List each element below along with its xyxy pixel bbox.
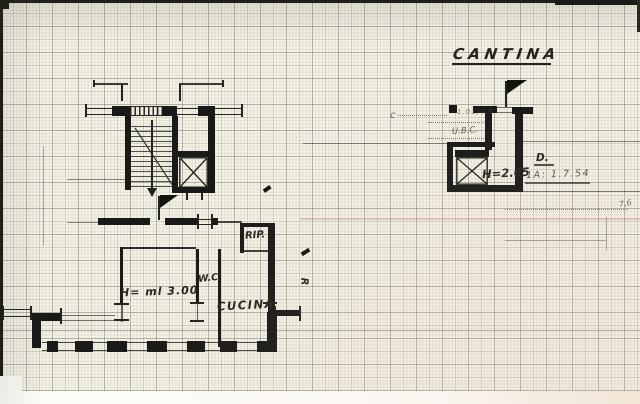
underline bbox=[525, 182, 590, 184]
window-symbol bbox=[3, 309, 31, 317]
cellar-wall bbox=[447, 142, 495, 147]
scan-edge-top bbox=[0, 0, 640, 3]
balcony-outline bbox=[179, 83, 223, 85]
construction-line bbox=[303, 143, 448, 144]
side-mark: R bbox=[298, 277, 309, 285]
plan-title: CANTINA bbox=[452, 45, 561, 63]
arrow-mark-icon bbox=[301, 248, 311, 256]
interior-wall bbox=[240, 223, 244, 253]
window-symbol bbox=[86, 108, 112, 115]
corner-wall bbox=[32, 313, 62, 321]
room-label-wc: W.C bbox=[197, 272, 218, 285]
construction-line bbox=[67, 179, 125, 180]
window-symbol bbox=[275, 310, 301, 316]
pilaster bbox=[257, 341, 277, 352]
construction-line bbox=[505, 240, 606, 241]
stair-window-symbol bbox=[130, 106, 162, 116]
room-label-storage: RIP. bbox=[245, 229, 266, 241]
cellar-height-note: H=2.65 bbox=[482, 165, 530, 181]
section-marker-icon bbox=[507, 80, 527, 94]
door-tick bbox=[114, 319, 129, 321]
tick bbox=[93, 80, 95, 87]
door-tick bbox=[201, 193, 203, 200]
dotted-leader bbox=[428, 122, 490, 123]
exterior-wall bbox=[98, 218, 150, 225]
construction-line bbox=[523, 141, 640, 142]
pilaster bbox=[107, 341, 127, 352]
interior-wall bbox=[120, 247, 196, 249]
door-symbol bbox=[197, 303, 198, 321]
cellar-wall bbox=[447, 185, 523, 192]
tick bbox=[85, 104, 87, 117]
pilaster bbox=[187, 341, 205, 352]
stair-direction-arrow-icon bbox=[147, 188, 157, 197]
red-grid-line bbox=[300, 218, 640, 220]
elevator-shaft-symbol bbox=[179, 157, 208, 188]
stair-break-line bbox=[131, 126, 175, 188]
section-marker-icon bbox=[160, 195, 178, 208]
room-label-kitchen: CUCINA bbox=[217, 296, 276, 313]
elevator-wall bbox=[178, 187, 215, 193]
scan-margin-bottom bbox=[0, 391, 640, 404]
height-note: H= ml 3.00 bbox=[120, 284, 199, 300]
measure-mark: 7,6 bbox=[618, 198, 632, 209]
tick bbox=[121, 84, 123, 101]
door-tick bbox=[114, 303, 129, 305]
section-marker-pole bbox=[158, 196, 160, 220]
door-opening bbox=[497, 107, 513, 113]
tick bbox=[179, 84, 181, 101]
construction-line bbox=[523, 191, 640, 192]
wall-line bbox=[218, 221, 242, 223]
balcony-outline bbox=[94, 83, 128, 85]
margin-note: U.B.C. bbox=[452, 125, 479, 137]
wall-pier bbox=[112, 106, 130, 116]
pilaster bbox=[147, 341, 167, 352]
scan-edge-left bbox=[0, 0, 3, 380]
interior-wall bbox=[242, 250, 270, 252]
elevator-wall bbox=[455, 150, 489, 157]
construction-line bbox=[606, 217, 607, 250]
arrow-mark-icon bbox=[263, 185, 272, 192]
door-tick bbox=[190, 302, 204, 304]
wall-pier bbox=[449, 105, 457, 113]
margin-note-top: 1.01/4.5 bbox=[457, 108, 494, 116]
window-symbol bbox=[198, 219, 212, 225]
door-tick bbox=[186, 193, 188, 200]
curve-mark: c bbox=[390, 110, 396, 121]
scan-edge-top-right bbox=[555, 0, 640, 5]
partition-wall bbox=[218, 249, 221, 347]
exterior-wall bbox=[165, 218, 198, 225]
cellar-wall bbox=[515, 112, 523, 192]
tick bbox=[241, 104, 243, 117]
dotted-line bbox=[505, 209, 628, 210]
pilaster bbox=[47, 341, 58, 352]
scan-corner-blob bbox=[0, 0, 9, 9]
tick bbox=[222, 80, 224, 87]
door-tick bbox=[190, 320, 204, 322]
section-marker-pole bbox=[505, 81, 507, 107]
pilaster bbox=[75, 341, 93, 352]
stair-center-line bbox=[151, 120, 153, 190]
ref-note: 1A: 1.7.54 bbox=[526, 168, 591, 181]
floor-plan-scan: RIP. W.C H= ml 3.00 CUCINA R CANTINA bbox=[0, 0, 640, 404]
construction-line bbox=[43, 146, 44, 246]
wall-pier bbox=[162, 106, 177, 116]
pilaster bbox=[220, 341, 237, 352]
window-symbol bbox=[62, 315, 115, 321]
title-underline bbox=[452, 63, 551, 65]
dotted-leader bbox=[428, 138, 488, 139]
elevator-wall bbox=[208, 112, 215, 193]
tick bbox=[299, 306, 301, 321]
underline bbox=[534, 164, 554, 166]
window-symbol bbox=[177, 108, 198, 115]
dotted-leader bbox=[398, 115, 447, 116]
scan-edge-right bbox=[637, 0, 640, 32]
construction-line bbox=[0, 330, 640, 331]
tick bbox=[197, 214, 199, 229]
ref-letter: D. bbox=[536, 152, 549, 164]
window-symbol bbox=[215, 108, 242, 115]
